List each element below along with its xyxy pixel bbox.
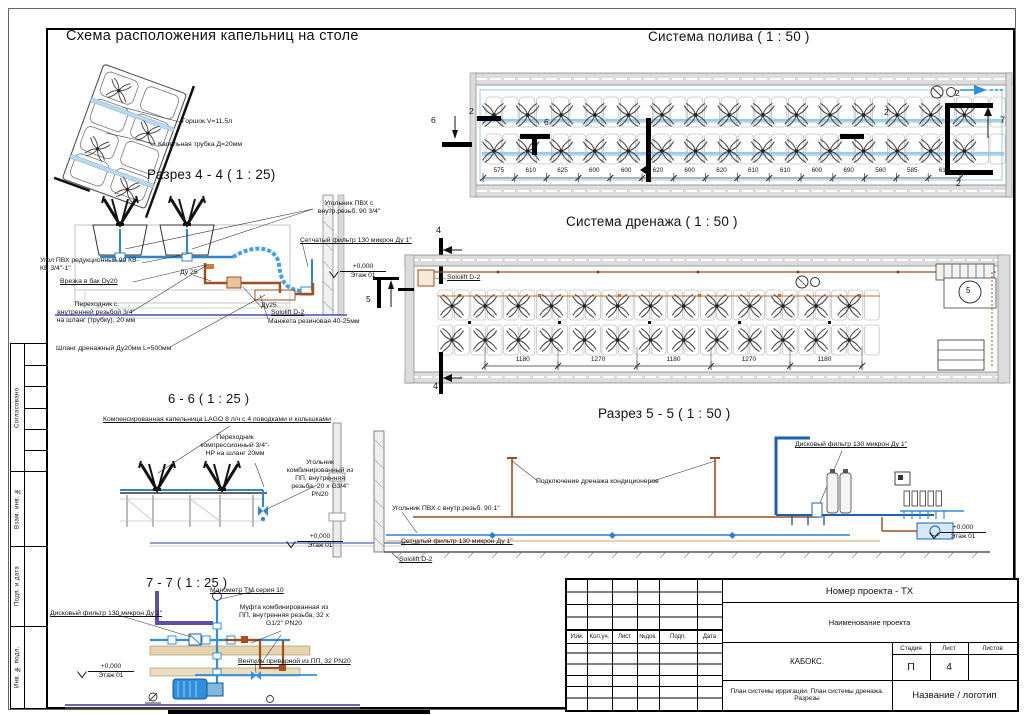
dimension-value: 575 [483, 166, 515, 175]
sololift-label-drain: Sololift D-2 [447, 274, 480, 282]
dimension-value: 620 [706, 166, 738, 175]
mesh-filter-label-55: Сетчатый фильтр 130 микрон Ду 1" [401, 538, 513, 546]
pot-cell [832, 290, 847, 320]
dimension-value: 1180 [787, 355, 862, 364]
dripper-lago-label: Компенсированная капельница LAGO 8 л/ч с… [103, 416, 331, 424]
reducing-elbow-label: Угол ПВХ редукционный 90 КВ-КВ 3/4"-1" [40, 257, 142, 273]
plant-symbol [440, 328, 463, 351]
pot-cell [864, 290, 879, 320]
dimension-value: 560 [865, 166, 897, 175]
dimension-value: 615 [928, 166, 960, 175]
coupling-label: Муфта комбинированная из ПП, внутренняя … [238, 604, 330, 628]
elevation-mark-77: +0,000 Этаж 01 [88, 663, 134, 679]
section-5-marker: 5 [366, 294, 371, 304]
dimension-value: 620 [642, 166, 674, 175]
pot-cell [604, 97, 619, 127]
plant-symbol [639, 294, 662, 317]
plant-symbol [606, 294, 629, 317]
section-4-4-title: Разрез 4 - 4 ( 1 : 25) [147, 167, 275, 182]
drainage-dimension-row: 11801270118012701180 [485, 355, 862, 364]
strip-subline [24, 386, 47, 387]
sheet-label: Лист [930, 642, 968, 654]
marker-4-top: 4 [436, 225, 441, 235]
dimension-value: 600 [801, 166, 833, 175]
rev-header-cell: Дата [697, 630, 722, 644]
pot-cell [864, 325, 879, 355]
dimension-value: 585 [896, 166, 928, 175]
strip-label-podp: Подп. и дата [11, 546, 24, 626]
pot-cell [503, 97, 518, 127]
pvc-elbow-label: Угольник ПВХ с внутр.резьб. 90 3/4" [306, 200, 392, 216]
pot-cell [805, 97, 820, 127]
marker-2-mid: 2 [884, 107, 889, 117]
disc-filter-label-55: Дисковый фильтр 130 микрон Ду 1" [795, 441, 907, 449]
marker-4-bottom: 4 [433, 381, 438, 391]
project-name: Наименование проекта [722, 602, 1017, 642]
sololift-label-44: Sololift D-2 [271, 309, 304, 317]
doc-title: План системы ирригации. План системы дре… [724, 680, 890, 710]
welded-valve-label: Вентиль приварной из ПП, 32 PN20 [238, 658, 351, 666]
strip-subline [24, 429, 47, 430]
plant-symbol [771, 328, 794, 351]
cuff-label: Манжета резиновая 40-25мм [268, 318, 360, 326]
pot-cell [799, 325, 814, 355]
marker-7: 7 [1000, 115, 1005, 125]
pot-cell [553, 325, 568, 355]
rev-col-line [637, 580, 638, 710]
plant-symbol [606, 328, 629, 351]
strip-label-approved: Согласовано [11, 344, 24, 471]
plant-symbol [573, 294, 596, 317]
dimension-value: 610 [515, 166, 547, 175]
strip-divider [24, 344, 25, 708]
dimension-value: 600 [610, 166, 642, 175]
manometer-label: Манометр ТМ серия 10 [210, 587, 284, 595]
pot-cell [520, 325, 535, 355]
stage-value: П [892, 654, 930, 680]
section-5-5-drawing [372, 425, 1015, 575]
logo-placeholder: Название / логотип [892, 680, 1017, 710]
rev-header-cell: Лист [612, 630, 637, 644]
disc-filter-label-77: Дисковый фильтр 130 микрон Ду 1" [50, 610, 162, 618]
project-number: Номер проекта - ТХ [722, 580, 1017, 602]
rev-col-line [659, 580, 660, 710]
marker-2-topleft: 2 [469, 106, 474, 116]
pot-cell [704, 97, 719, 127]
rev-table-lower [567, 642, 722, 708]
dimension-value: 610 [769, 166, 801, 175]
elevation-mark-44: +0,000 Этаж 01 [340, 263, 386, 279]
strip-subline [24, 365, 47, 366]
dimension-value: 690 [833, 166, 865, 175]
strip-label-inv: Инв. № подл. [11, 626, 24, 708]
combined-elbow-label: Угольник комбинированный из ПП, внутренн… [284, 459, 356, 499]
dimension-value: 625 [547, 166, 579, 175]
title-block: Изм.Кол.уч.Лист№док.Подп.Дата Номер прое… [565, 578, 1019, 712]
pot-cell [772, 97, 787, 127]
du25-label: Ду 25 [180, 269, 198, 277]
mesh-filter-label: Сетчатый фильтр 130 микрон Ду 1" [300, 237, 412, 245]
elevation-mark-55: +0,000 Этаж 01 [940, 524, 986, 540]
compression-adapter-label: Переходник компрессионный 3/4"-НР на шла… [197, 434, 273, 458]
pot-label: Горшок V=11.5л [182, 118, 232, 126]
pot-cell [671, 97, 686, 127]
condenser-drain-label: Подключение дренажа кондиционеров [536, 478, 659, 486]
pot-cell [454, 325, 469, 355]
pot-cell [700, 325, 715, 355]
tank-5-number: 5 [966, 286, 970, 295]
pot-cell [487, 290, 502, 320]
company-name: КАБОКС. [722, 642, 892, 680]
rev-header-cell: Изм. [567, 630, 587, 644]
plant-symbol [838, 328, 861, 351]
pot-cell [906, 97, 921, 127]
drainage-plan-drawing [398, 226, 1016, 398]
rev-header-cell: Подп. [659, 630, 697, 644]
sololift-label-55: Sololift D-2 [399, 556, 432, 564]
elevation-mark-66: +0,000 Этаж 01 [297, 533, 343, 549]
marker-6-mid: 6 [544, 117, 549, 127]
dimension-value: 1270 [560, 355, 635, 364]
plant-symbol [573, 328, 596, 351]
drawing-sheet: Схема расположения капельниц на столе Го… [0, 0, 1024, 715]
rev-col-line [697, 580, 698, 710]
plant-symbol [440, 294, 463, 317]
plant-symbol [838, 294, 861, 317]
section-7-7-drawing [55, 583, 370, 715]
plant-symbol [639, 328, 662, 351]
marker-6-left: 6 [431, 115, 436, 125]
pot-cell [738, 97, 753, 127]
tank-tap-label: Врезка в бак Dy20 [60, 278, 118, 286]
plant-symbol [474, 294, 497, 317]
dimension-value: 600 [578, 166, 610, 175]
plant-symbol [805, 294, 828, 317]
left-title-strip: Согласовано Взам. инв. № Подп. и дата Ин… [10, 343, 48, 709]
rev-col-line [587, 580, 588, 710]
stage-label: Стадия [892, 642, 930, 654]
strip-label-vzam: Взам. инв. № [11, 471, 24, 546]
sheet-value: 4 [930, 654, 968, 680]
irrigation-title: Система полива ( 1 : 50 ) [648, 29, 810, 44]
pot-cell [454, 290, 469, 320]
plant-symbol [771, 294, 794, 317]
screenshot-artifact-bar [168, 710, 430, 714]
drip-tube-label: Капельная трубка Д=20мм [158, 141, 242, 149]
irrigation-plan-drawing [428, 70, 1016, 202]
dimension-value: 610 [737, 166, 769, 175]
strip-subline [24, 408, 47, 409]
pot-cell [733, 325, 748, 355]
pvc-elbow-label-55: Угольник ПВХ с внутр.резьб. 90 1" [392, 505, 500, 513]
pot-cell [766, 325, 781, 355]
marker-2-bottomright: 2 [956, 178, 961, 188]
rev-header-cell: Кол.уч. [587, 630, 612, 644]
scheme-title: Схема расположения капельниц на столе [66, 28, 359, 44]
sheets-value [968, 654, 1017, 680]
adapter-label: Переходник с внутренней резьбой 3/4" на … [56, 301, 136, 325]
drain-hose-label: Шланг дренажный Ду20мм L=500мм [56, 345, 171, 353]
sheets-label: Листов [968, 642, 1017, 654]
pot-cell [839, 97, 854, 127]
pot-cell [832, 325, 847, 355]
rev-col-line [612, 580, 613, 710]
pot-cell [990, 134, 1005, 164]
dimension-value: 1180 [636, 355, 711, 364]
strip-subline [24, 450, 47, 451]
dimension-value: 600 [674, 166, 706, 175]
section-6-6-title: 6 - 6 ( 1 : 25 ) [168, 391, 249, 406]
pot-cell [487, 325, 502, 355]
pot-cell [570, 97, 585, 127]
dimension-value: 1270 [711, 355, 786, 364]
irrigation-dimension-row: 5756106256006006206006206106106006905605… [483, 166, 960, 175]
dimension-value: 1180 [485, 355, 560, 364]
marker-2-right: 2 [955, 88, 960, 98]
plant-symbol [805, 328, 828, 351]
rev-table-upper [567, 580, 722, 630]
rev-header-cell: №док. [637, 630, 659, 644]
section-5-5-title: Разрез 5 - 5 ( 1 : 50 ) [598, 406, 730, 421]
pot-cell [799, 290, 814, 320]
